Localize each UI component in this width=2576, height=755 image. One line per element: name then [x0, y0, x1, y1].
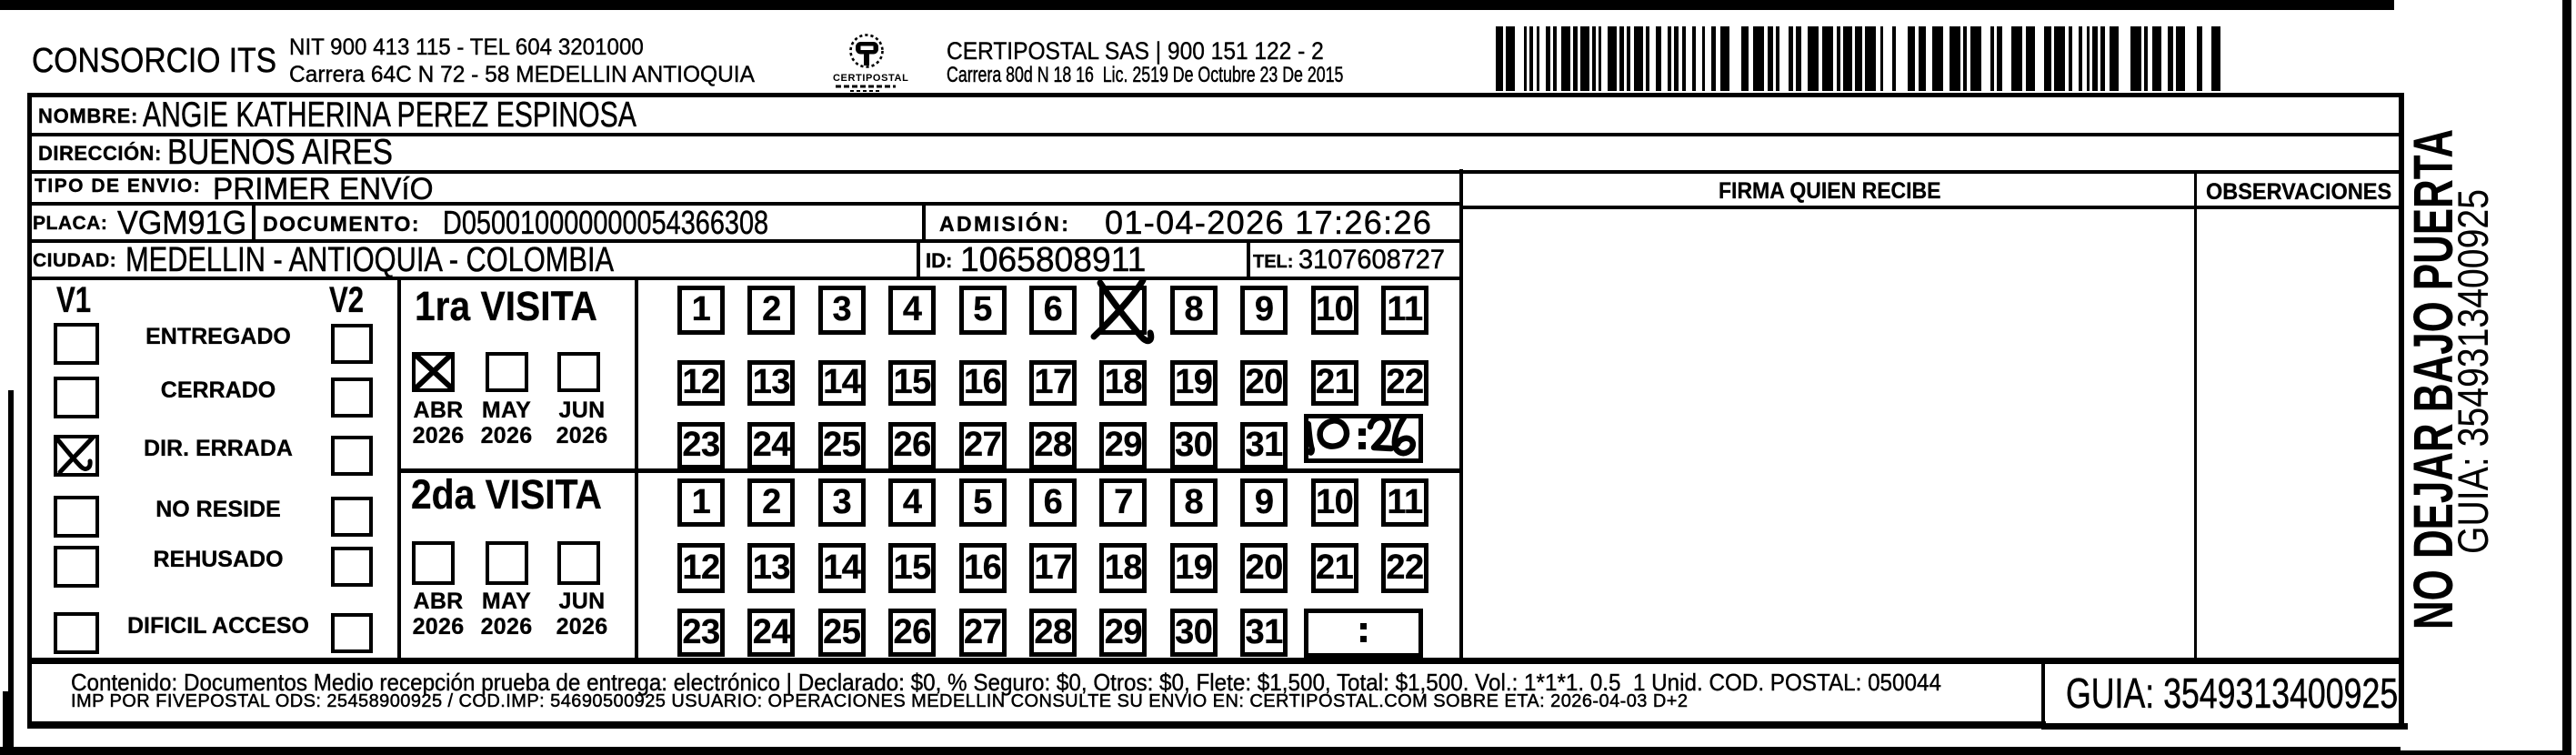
svg-text:GUIA: 3549313400925: GUIA: 3549313400925: [2449, 189, 2497, 554]
